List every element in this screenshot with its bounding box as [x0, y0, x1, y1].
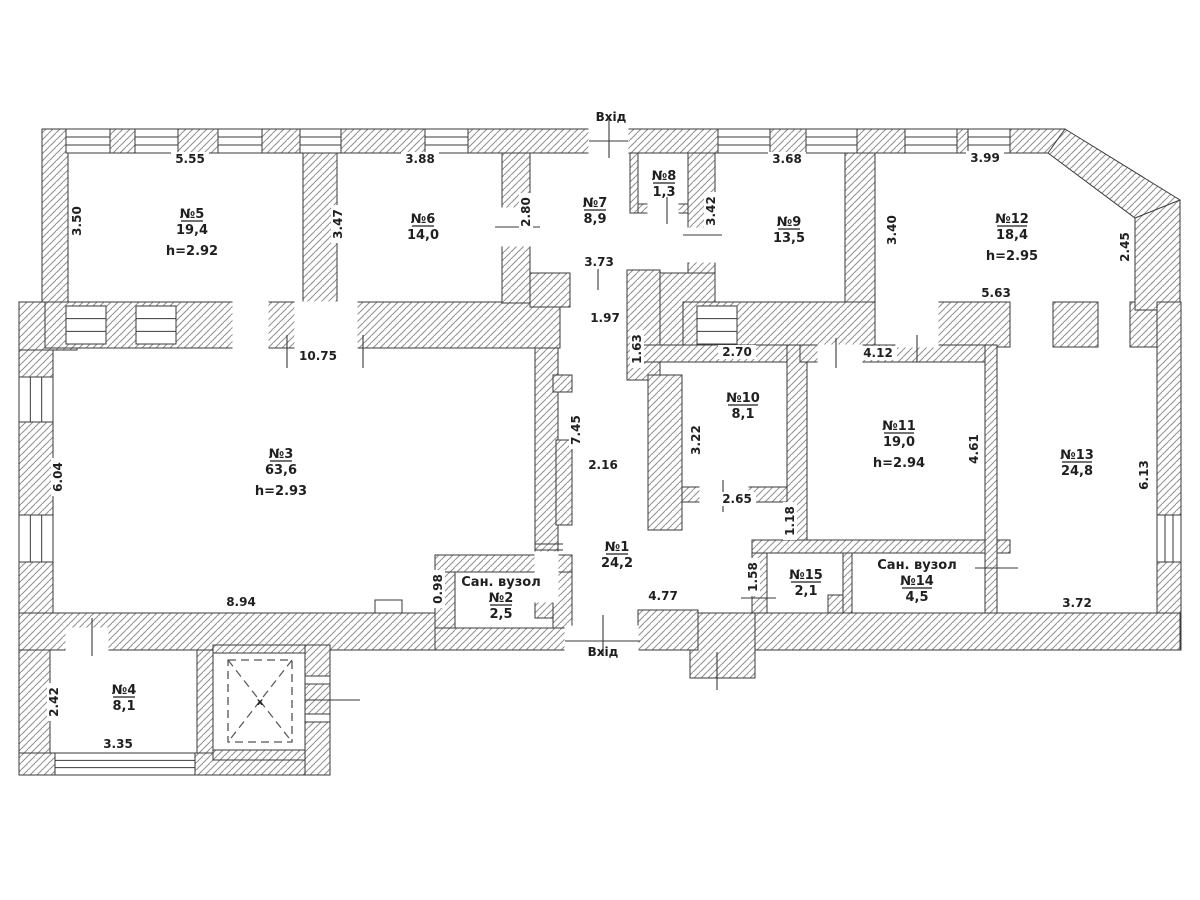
room-area: 1,3: [652, 185, 675, 200]
room-name: №10: [726, 391, 760, 406]
dimension-value: 6.13: [1137, 460, 1151, 490]
wall-segment: [843, 553, 852, 613]
room-label: №124,2: [601, 540, 633, 571]
dimension-value: 2.45: [1118, 232, 1132, 262]
room-name: №13: [1060, 448, 1094, 463]
room-prefix: Сан. вузол: [877, 558, 956, 573]
dimension-value: 4.61: [967, 434, 981, 464]
dimension-value: 3.50: [70, 206, 84, 236]
dimension-label: 1.18: [783, 502, 797, 540]
room-area: 8,1: [112, 699, 135, 714]
window: [968, 129, 1010, 153]
dimension-label: 2.42: [47, 683, 61, 721]
wall-niche: [375, 600, 402, 613]
window: [718, 129, 770, 153]
wall-segment: [985, 345, 997, 613]
room-height: h=2.92: [166, 244, 218, 259]
dimension-value: 2.80: [519, 197, 533, 227]
dimension-label: 2.16: [584, 458, 622, 472]
dimension-label: 6.04: [51, 458, 65, 496]
window: [66, 129, 110, 153]
door-opening: [295, 302, 357, 348]
dimension-label: 1.97: [586, 311, 624, 325]
wall-segment: [42, 129, 68, 304]
wall-segment: [213, 645, 305, 653]
floor-plan-svg: x5.553.883.683.993.503.472.803.423.402.4…: [0, 0, 1200, 900]
dimension-label: 3.40: [885, 211, 899, 249]
dimension-label: 3.42: [704, 192, 718, 230]
shaft-x-mark: x: [257, 697, 264, 708]
window: [218, 129, 262, 153]
dimension-value: 2.42: [47, 687, 61, 717]
dimension-label: 3.50: [70, 202, 84, 240]
room-label: №1324,8: [1060, 448, 1094, 479]
wall-segment: [938, 302, 1010, 347]
entrance-label: Вхід: [596, 110, 627, 124]
room-name: №1: [605, 540, 630, 555]
room-area: 2,5: [489, 607, 512, 622]
dimension-label: 4.61: [967, 430, 981, 468]
window: [135, 129, 178, 153]
room-area: 2,1: [794, 584, 817, 599]
dimension-label: 3.35: [99, 737, 137, 751]
dimension-label: 3.73: [580, 255, 618, 269]
entrance-label: Вхід: [588, 645, 619, 659]
dimension-value: 10.75: [299, 349, 337, 363]
room-area: 24,2: [601, 556, 633, 571]
dimension-label: 3.72: [1058, 596, 1096, 610]
window: [55, 753, 195, 775]
wall-segment: [435, 628, 565, 650]
dimension-value: 7.45: [569, 415, 583, 445]
room-name: №15: [789, 568, 823, 583]
wall-segment: [556, 440, 572, 525]
room-height: h=2.93: [255, 484, 307, 499]
wall-segment: [305, 645, 330, 775]
dimension-value: 5.63: [981, 286, 1011, 300]
wall-segment: [197, 650, 213, 753]
window: [19, 515, 53, 562]
dimension-label: 2.80: [519, 193, 533, 231]
window: [806, 129, 857, 153]
door-opening: [233, 302, 268, 348]
wall-segment: [630, 153, 638, 213]
dimension-value: 3.73: [584, 255, 614, 269]
room-height: h=2.95: [986, 249, 1038, 264]
wall-segment: [1135, 200, 1180, 310]
room-area: 63,6: [265, 463, 297, 478]
dimension-value: 2.65: [722, 492, 752, 506]
door-opening: [688, 228, 715, 262]
dimension-label: 2.45: [1118, 228, 1132, 266]
dimension-value: 1.58: [746, 562, 760, 592]
room-area: 14,0: [407, 228, 439, 243]
dimension-value: 3.99: [970, 151, 1000, 165]
door-opening: [66, 628, 108, 650]
dimension-label: 3.99: [966, 151, 1004, 165]
dimension-value: 3.72: [1062, 596, 1092, 610]
dimension-label: 5.55: [171, 152, 209, 166]
room-label: №78,9: [583, 196, 608, 227]
dimension-label: 4.77: [644, 589, 682, 603]
door-opening: [818, 345, 862, 362]
dimension-label: 2.70: [718, 345, 756, 359]
dimension-value: 3.42: [704, 196, 718, 226]
room-name: №11: [882, 419, 916, 434]
room-area: 13,5: [773, 231, 805, 246]
room-area: 8,9: [583, 212, 606, 227]
dimension-value: 0.98: [431, 574, 445, 604]
dimension-label: 1.58: [746, 558, 760, 596]
dimension-value: 1.63: [630, 334, 644, 364]
wall-segment: [755, 613, 1180, 650]
room-height: h=2.94: [873, 456, 925, 471]
dimension-value: 3.68: [772, 152, 802, 166]
room-area: 19,4: [176, 223, 208, 238]
room-name: №12: [995, 212, 1029, 227]
room-area: 24,8: [1061, 464, 1093, 479]
window: [697, 306, 737, 344]
dimension-value: 2.70: [722, 345, 752, 359]
dimension-label: 3.88: [401, 152, 439, 166]
dimension-value: 2.16: [588, 458, 618, 472]
wall-segment: [828, 595, 843, 613]
dimension-value: 3.35: [103, 737, 133, 751]
dimension-label: 5.63: [977, 286, 1015, 300]
dimension-value: 5.55: [175, 152, 205, 166]
wall-segment: [648, 375, 682, 530]
wall-segment: [553, 375, 572, 392]
wall-niche: [305, 714, 330, 722]
room-name: №7: [583, 196, 608, 211]
window: [66, 306, 106, 344]
dimension-label: 4.12: [859, 346, 897, 360]
dimension-value: 3.40: [885, 215, 899, 245]
dimension-value: 4.77: [648, 589, 678, 603]
wall-niche: [305, 676, 330, 684]
wall-segment: [845, 153, 875, 303]
floor-plan-page: x5.553.883.683.993.503.472.803.423.402.4…: [0, 0, 1200, 900]
dimension-label: 3.68: [768, 152, 806, 166]
room-area: 4,5: [905, 590, 928, 605]
dimension-value: 8.94: [226, 595, 256, 609]
room-label: №913,5: [773, 215, 805, 246]
door-opening: [648, 204, 678, 213]
dimension-label: 3.22: [689, 421, 703, 459]
room-area: 8,1: [731, 407, 754, 422]
dimension-label: 8.94: [222, 595, 260, 609]
window: [905, 129, 957, 153]
room-name: №4: [112, 683, 137, 698]
dimension-value: 6.04: [51, 462, 65, 492]
room-label: №81,3: [652, 169, 677, 200]
room-name: №6: [411, 212, 436, 227]
dimension-value: 4.12: [863, 346, 893, 360]
wall-segment: [1157, 302, 1181, 650]
dimension-value: 1.97: [590, 311, 620, 325]
dimension-value: 3.47: [331, 209, 345, 239]
wall-segment: [1053, 302, 1098, 347]
window: [19, 377, 53, 422]
room-name: №8: [652, 169, 677, 184]
dimension-value: 3.22: [689, 425, 703, 455]
room-area: 18,4: [996, 228, 1028, 243]
room-prefix: Сан. вузол: [461, 575, 540, 590]
window: [136, 306, 176, 344]
room-label: №614,0: [407, 212, 439, 243]
wall-segment: [638, 610, 698, 650]
wall-segment: [690, 613, 755, 678]
dimension-label: 7.45: [569, 411, 583, 449]
dimension-label: 1.63: [630, 330, 644, 368]
wall-segment: [213, 750, 305, 760]
window: [1157, 515, 1181, 562]
room-name: №3: [269, 447, 294, 462]
dimension-value: 1.18: [783, 506, 797, 536]
dimension-label: 0.98: [431, 570, 445, 608]
dimension-label: 3.47: [331, 205, 345, 243]
dimension-value: 3.88: [405, 152, 435, 166]
window: [425, 129, 468, 153]
dimension-label: 6.13: [1137, 456, 1151, 494]
dimension-label: 10.75: [296, 349, 341, 363]
room-label: №48,1: [112, 683, 137, 714]
window: [300, 129, 341, 153]
room-area: 19,0: [883, 435, 915, 450]
room-name: №5: [180, 207, 205, 222]
wall-segment: [530, 273, 570, 307]
room-name: №9: [777, 215, 802, 230]
wall-segment: [752, 540, 1010, 553]
room-name: №2: [489, 591, 514, 606]
room-name: №14: [900, 574, 934, 589]
dimension-label: 2.65: [718, 492, 756, 506]
